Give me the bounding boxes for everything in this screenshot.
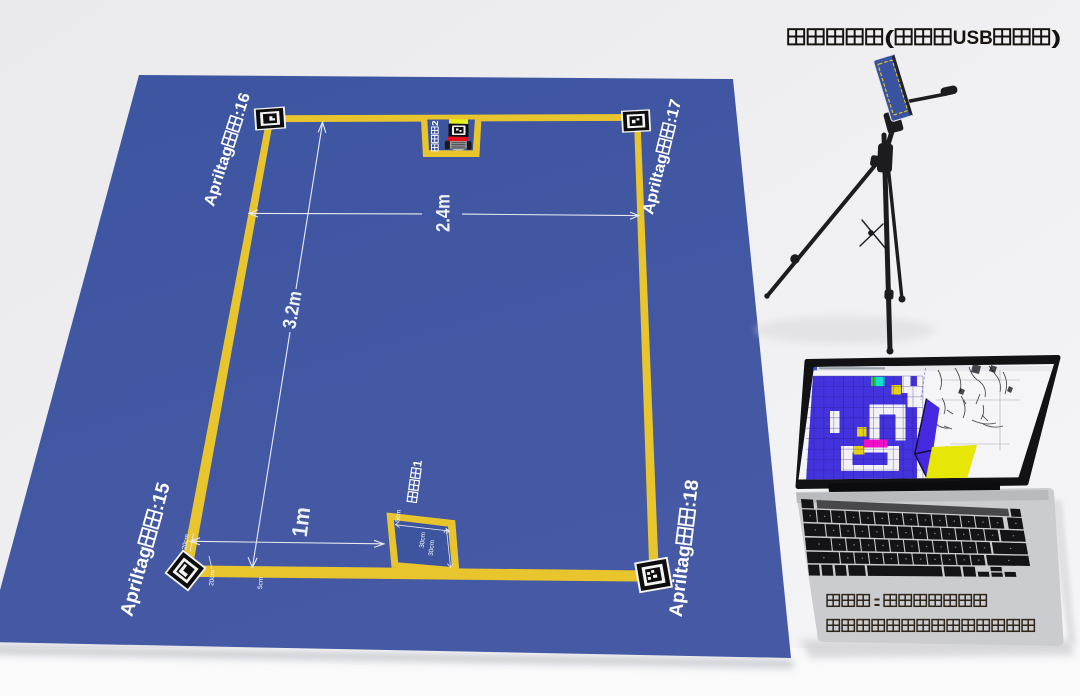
svg-text:(: ( — [884, 27, 895, 49]
svg-text:30cm: 30cm — [428, 540, 436, 556]
svg-text:2: 2 — [430, 120, 440, 126]
svg-text::: : — [871, 593, 883, 610]
svg-text::18: :18 — [679, 479, 703, 509]
svg-text:1m: 1m — [287, 506, 315, 539]
svg-text:5cm: 5cm — [257, 577, 265, 590]
svg-text:5cm: 5cm — [394, 509, 402, 522]
svg-text:2.4m: 2.4m — [434, 194, 455, 232]
svg-text:): ) — [1051, 27, 1061, 49]
svg-text:USB: USB — [953, 27, 993, 49]
svg-text:30cm: 30cm — [419, 532, 427, 548]
svg-text:20cm: 20cm — [208, 570, 216, 586]
